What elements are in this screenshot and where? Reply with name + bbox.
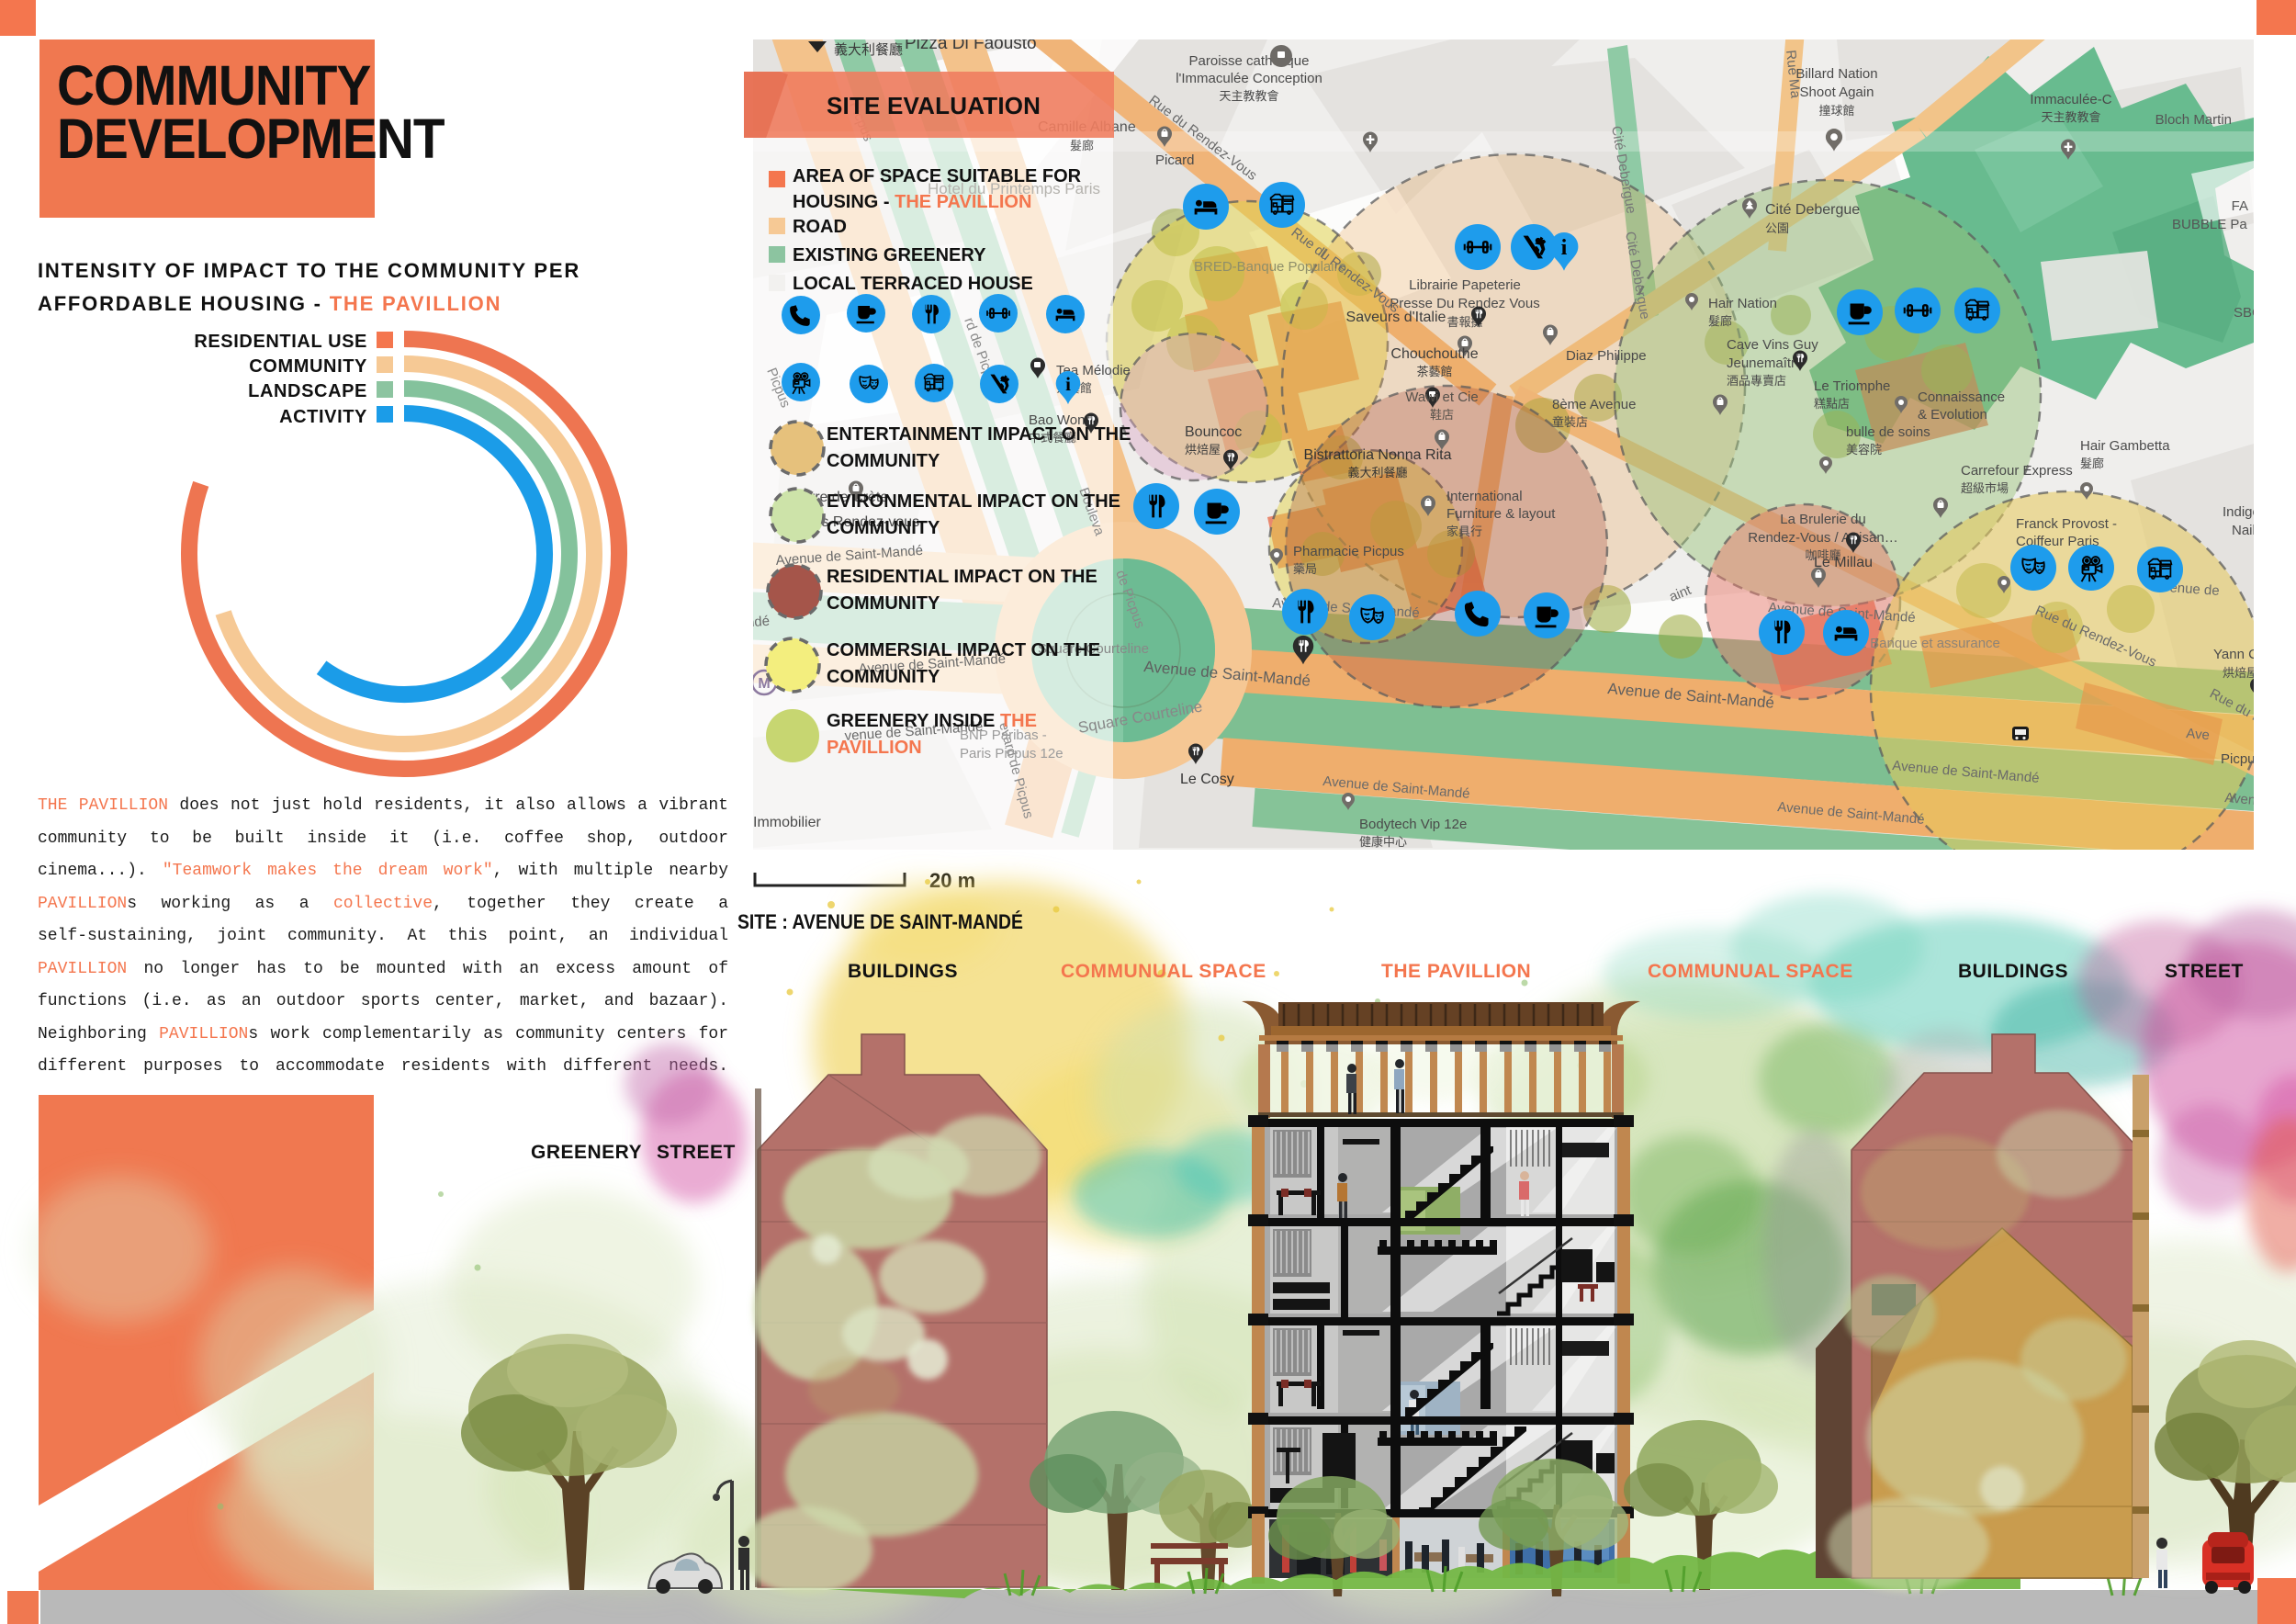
- svg-text:Carrefour Express: Carrefour Express: [1961, 463, 2073, 479]
- svg-text:& Evolution: & Evolution: [1918, 407, 1987, 423]
- svg-text:BUBBLE Pa: BUBBLE Pa: [2172, 217, 2247, 232]
- svg-text:Shoot Again: Shoot Again: [1800, 85, 1874, 100]
- svg-text:義大利餐廳: 義大利餐廳: [834, 41, 903, 58]
- svg-text:Rendez-Vous / Artisan…: Rendez-Vous / Artisan…: [1748, 530, 1897, 546]
- svg-text:Hair Nation: Hair Nation: [1708, 296, 1777, 311]
- svg-text:Nail art stud: Nail art stud: [2232, 523, 2254, 538]
- svg-text:Saveurs d'Italie: Saveurs d'Italie: [1346, 310, 1446, 325]
- svg-text:超級市場: 超級市場: [1961, 481, 2009, 495]
- svg-text:Yann Chantrell: Yann Chantrell: [2213, 647, 2254, 662]
- svg-text:童裝店: 童裝店: [1552, 415, 1588, 429]
- svg-text:茶藝館: 茶藝館: [1416, 365, 1452, 378]
- svg-text:Bouncoc: Bouncoc: [1185, 424, 1242, 440]
- svg-text:酒品專賣店: 酒品專賣店: [1727, 374, 1786, 388]
- svg-text:l'Immaculée Conception: l'Immaculée Conception: [1176, 71, 1322, 86]
- svg-text:公園: 公園: [1765, 221, 1789, 235]
- svg-text:髮廊: 髮廊: [1070, 139, 1094, 152]
- svg-text:Wawi et Cie: Wawi et Cie: [1405, 389, 1478, 405]
- svg-text:糕點店: 糕點店: [1814, 397, 1850, 411]
- svg-text:Pizza Di Faousto: Pizza Di Faousto: [905, 39, 1037, 53]
- svg-text:Connaissance: Connaissance: [1918, 389, 2005, 405]
- svg-text:SBC IN: SBC IN: [2234, 305, 2254, 321]
- svg-text:Furniture & layout: Furniture & layout: [1446, 506, 1556, 522]
- svg-text:FA: FA: [2232, 198, 2248, 214]
- svg-text:La Brulerie du: La Brulerie du: [1780, 512, 1865, 527]
- svg-text:烘焙屋: 烘焙屋: [1185, 443, 1221, 457]
- svg-text:Le Cosy: Le Cosy: [1180, 772, 1234, 787]
- svg-text:髮廊: 髮廊: [1708, 314, 1732, 328]
- svg-text:Immaculée-C: Immaculée-C: [2030, 92, 2111, 107]
- svg-text:8ème Avenue: 8ème Avenue: [1552, 397, 1636, 412]
- svg-text:藥局: 藥局: [1293, 562, 1317, 576]
- svg-text:Cave Vins Guy: Cave Vins Guy: [1727, 337, 1818, 353]
- svg-text:Franck Provost -: Franck Provost -: [2016, 516, 2117, 532]
- svg-text:Diaz Philippe: Diaz Philippe: [1566, 348, 1647, 364]
- svg-text:Ave: Ave: [2186, 726, 2211, 743]
- svg-text:烘焙屋: 烘焙屋: [2223, 666, 2254, 680]
- svg-text:Chouchouthe: Chouchouthe: [1390, 346, 1478, 362]
- svg-text:Picard: Picard: [1155, 152, 1195, 168]
- svg-text:Bistrattoria Nonna Rita: Bistrattoria Nonna Rita: [1304, 447, 1452, 463]
- svg-text:andé: andé: [753, 614, 771, 631]
- svg-text:Billard Nation: Billard Nation: [1795, 66, 1877, 82]
- svg-text:Le Millau: Le Millau: [1814, 555, 1873, 570]
- svg-text:天主教教會: 天主教教會: [2041, 110, 2100, 124]
- svg-text:International: International: [1446, 489, 1523, 504]
- svg-text:Hair Gambetta: Hair Gambetta: [2080, 438, 2170, 454]
- svg-text:鞋店: 鞋店: [1430, 408, 1454, 422]
- svg-text:Indigo Nails Par: Indigo Nails Par: [2223, 504, 2254, 520]
- svg-text:家具行: 家具行: [1446, 524, 1482, 538]
- svg-text:Bloch Martin: Bloch Martin: [2155, 112, 2232, 128]
- svg-text:Librairie Papeterie: Librairie Papeterie: [1409, 277, 1521, 293]
- svg-text:義大利餐廳: 義大利餐廳: [1347, 466, 1407, 479]
- svg-text:Jeunemaître: Jeunemaître: [1727, 355, 1803, 371]
- svg-text:天主教教會: 天主教教會: [1219, 89, 1278, 103]
- svg-text:Le Triomphe: Le Triomphe: [1814, 378, 1890, 394]
- svg-text:美容院: 美容院: [1846, 443, 1882, 457]
- svg-text:Picpus: Picpus: [2221, 751, 2254, 767]
- svg-text:撞球館: 撞球館: [1818, 104, 1854, 118]
- svg-text:Cité Debergue: Cité Debergue: [1765, 202, 1860, 218]
- svg-text:Pharmacie Picpus: Pharmacie Picpus: [1293, 544, 1404, 559]
- svg-text:髮廊: 髮廊: [2080, 457, 2104, 470]
- svg-text:bulle de soins: bulle de soins: [1846, 424, 1930, 440]
